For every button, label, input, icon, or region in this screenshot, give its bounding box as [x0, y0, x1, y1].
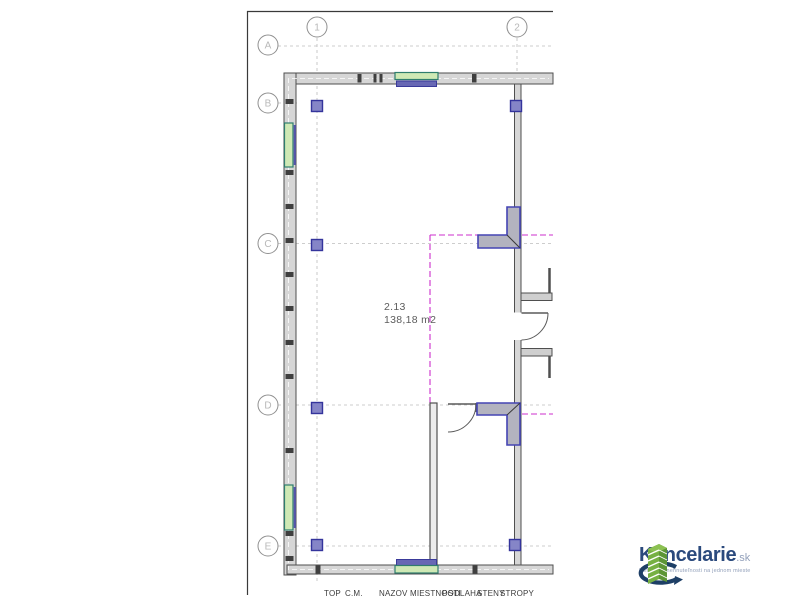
door-right-wall [514, 313, 549, 341]
floor-plan-page: 1 2 A B C D E [0, 0, 800, 600]
legend-col-stropy: STROPY [500, 589, 534, 598]
legend-col-cm: C.M. [345, 589, 363, 598]
floor-plan-drawing: 1 2 A B C D E [0, 0, 800, 600]
column [312, 403, 323, 414]
logo-tld: .sk [736, 552, 750, 564]
grid-label-a: A [265, 41, 272, 52]
grid-label-c: C [264, 239, 271, 250]
room-area: 138,18 m2 [384, 314, 436, 327]
window-top [395, 73, 438, 87]
room-number: 2.13 [384, 301, 436, 314]
column [511, 101, 522, 112]
column [312, 540, 323, 551]
column [312, 240, 323, 251]
lease-boundary-lines [430, 235, 553, 414]
kancelarie-logo[interactable]: Kancelarie.sk komerčné nehnuteľnosti na … [636, 536, 796, 594]
window-bottom [395, 560, 438, 574]
grid-markers: 1 2 A B C D E [258, 17, 527, 556]
wall-ticks [286, 74, 478, 574]
door-bottom-room [448, 403, 476, 432]
grid-marker-row-d: D [258, 395, 278, 415]
window-left-bottom [285, 485, 295, 530]
grid-label-e: E [265, 542, 272, 553]
grid-label-d: D [264, 401, 271, 412]
grid-label-b: B [265, 99, 272, 110]
grid-label-1: 1 [314, 23, 320, 34]
partition-wall-bottom [430, 403, 437, 565]
legend-col-podlaha: PODLAHA [442, 589, 482, 598]
grid-label-2: 2 [514, 23, 520, 34]
grid-marker-col-1: 1 [307, 17, 327, 37]
column [312, 101, 323, 112]
swoosh-ribbon-icon [674, 576, 683, 585]
room-label: 2.13 138,18 m2 [384, 301, 436, 327]
interior-walls-right [521, 268, 552, 378]
building-tower-icon [648, 544, 667, 584]
grid-marker-row-b: B [258, 93, 278, 113]
legend-col-top: TOP [324, 589, 341, 598]
column [510, 540, 521, 551]
grid-marker-row-c: C [258, 234, 278, 254]
building-logo-icon [636, 536, 686, 592]
grid-marker-col-2: 2 [507, 17, 527, 37]
grid-marker-row-a: A [258, 35, 278, 55]
grid-marker-row-e: E [258, 536, 278, 556]
window-left-top [285, 123, 295, 167]
